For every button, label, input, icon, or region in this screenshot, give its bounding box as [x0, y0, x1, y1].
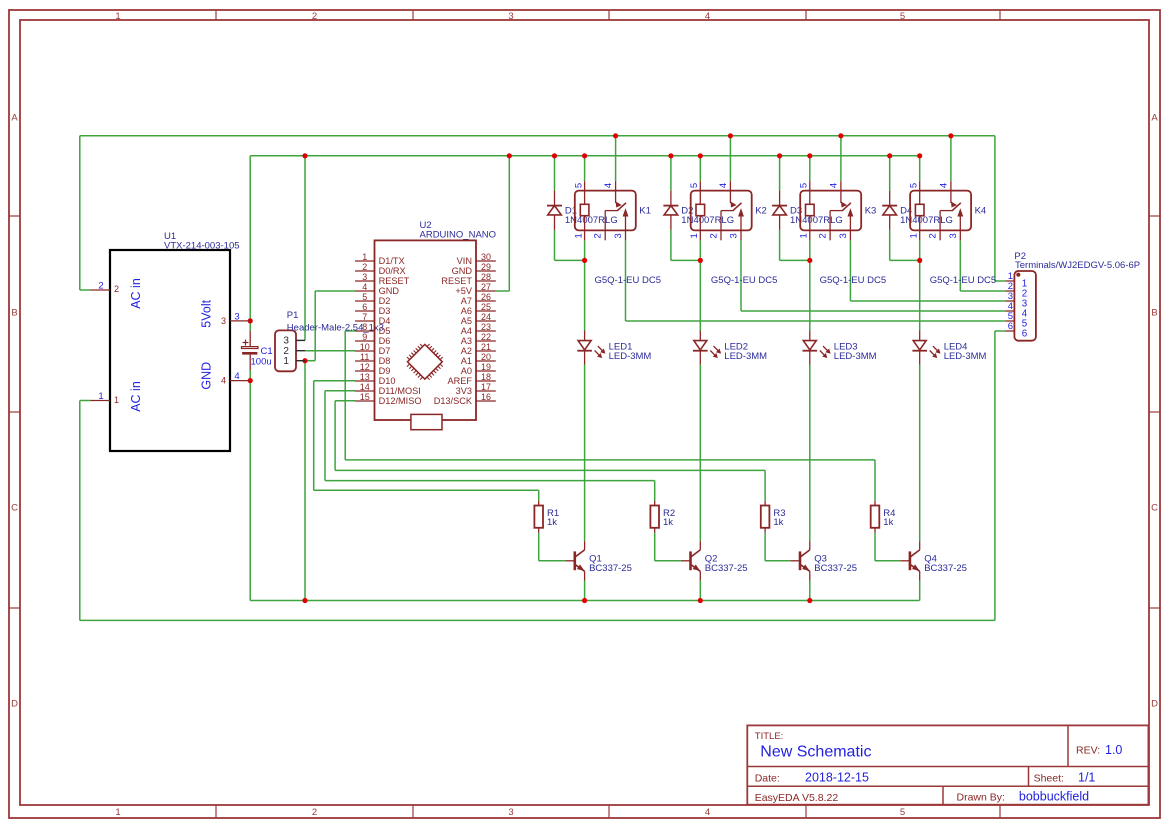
- svg-text:BC337-25: BC337-25: [589, 563, 632, 574]
- svg-text:1: 1: [115, 807, 120, 818]
- svg-text:1: 1: [909, 233, 920, 238]
- svg-text:5: 5: [900, 11, 905, 22]
- svg-text:GND: GND: [200, 362, 214, 390]
- svg-text:5Volt: 5Volt: [200, 299, 214, 327]
- svg-text:BC337-25: BC337-25: [814, 563, 857, 574]
- svg-text:bobbuckfield: bobbuckfield: [1019, 790, 1089, 804]
- svg-text:D8: D8: [379, 356, 391, 366]
- svg-text:A: A: [11, 113, 18, 124]
- svg-text:2: 2: [98, 281, 103, 292]
- svg-text:1: 1: [689, 233, 700, 238]
- svg-text:1: 1: [283, 356, 289, 367]
- svg-text:22: 22: [481, 332, 491, 342]
- svg-text:29: 29: [481, 262, 491, 272]
- svg-text:21: 21: [481, 342, 491, 352]
- svg-text:A: A: [1151, 113, 1158, 124]
- svg-text:3: 3: [221, 316, 226, 326]
- svg-text:1N4007RLG: 1N4007RLG: [900, 215, 953, 226]
- svg-text:3: 3: [613, 233, 624, 238]
- svg-text:30: 30: [481, 252, 491, 262]
- svg-text:D2: D2: [379, 296, 391, 306]
- svg-text:D0/RX: D0/RX: [379, 266, 406, 276]
- svg-text:26: 26: [481, 292, 491, 302]
- svg-text:A4: A4: [461, 326, 472, 336]
- svg-text:K1: K1: [639, 205, 651, 216]
- svg-text:K2: K2: [755, 205, 767, 216]
- svg-text:A2: A2: [461, 346, 472, 356]
- svg-text:Date:: Date:: [755, 772, 780, 784]
- svg-text:1: 1: [573, 233, 584, 238]
- svg-text:D9: D9: [379, 366, 391, 376]
- svg-text:LED-3MM: LED-3MM: [834, 351, 877, 362]
- svg-text:G5Q-1-EU DC5: G5Q-1-EU DC5: [820, 275, 887, 286]
- svg-text:5: 5: [799, 183, 810, 188]
- svg-text:1.0: 1.0: [1105, 743, 1122, 757]
- svg-text:6: 6: [1008, 321, 1013, 332]
- svg-text:1N4007RLG: 1N4007RLG: [681, 215, 734, 226]
- svg-text:GND: GND: [379, 286, 400, 296]
- svg-text:27: 27: [481, 282, 491, 292]
- svg-text:G5Q-1-EU DC5: G5Q-1-EU DC5: [595, 275, 662, 286]
- svg-text:B: B: [11, 308, 17, 319]
- svg-text:4: 4: [705, 807, 710, 818]
- svg-text:1: 1: [115, 11, 120, 22]
- svg-text:4: 4: [718, 183, 729, 188]
- svg-text:3: 3: [508, 807, 513, 818]
- svg-text:3: 3: [948, 233, 959, 238]
- svg-text:1k: 1k: [547, 517, 557, 528]
- svg-text:A1: A1: [461, 356, 472, 366]
- svg-text:7: 7: [362, 312, 367, 322]
- svg-text:2: 2: [312, 807, 317, 818]
- svg-text:REV:: REV:: [1076, 745, 1100, 757]
- svg-text:D: D: [1151, 699, 1158, 710]
- svg-text:RESET: RESET: [441, 276, 472, 286]
- svg-text:4: 4: [362, 282, 367, 292]
- svg-text:5: 5: [362, 292, 367, 302]
- svg-text:5: 5: [909, 183, 920, 188]
- svg-text:17: 17: [481, 382, 491, 392]
- svg-text:RESET: RESET: [379, 276, 410, 286]
- svg-text:+5V: +5V: [455, 286, 472, 296]
- svg-text:K3: K3: [865, 205, 877, 216]
- svg-text:9: 9: [362, 332, 367, 342]
- svg-text:K4: K4: [975, 205, 987, 216]
- svg-text:Sheet:: Sheet:: [1034, 772, 1064, 784]
- svg-text:D3: D3: [379, 306, 391, 316]
- svg-text:D13/SCK: D13/SCK: [434, 396, 473, 406]
- svg-text:GND: GND: [452, 266, 473, 276]
- svg-text:D11/MOSI: D11/MOSI: [379, 386, 421, 396]
- svg-text:2: 2: [114, 284, 119, 294]
- svg-text:1k: 1k: [773, 517, 783, 528]
- svg-text:AC in: AC in: [129, 278, 143, 309]
- svg-text:TITLE:: TITLE:: [755, 731, 784, 742]
- svg-text:2: 2: [928, 233, 939, 238]
- svg-text:A5: A5: [461, 316, 472, 326]
- svg-text:VTX-214-003-105: VTX-214-003-105: [164, 241, 240, 252]
- svg-text:15: 15: [360, 392, 370, 402]
- svg-text:ARDUINO_NANO: ARDUINO_NANO: [420, 230, 497, 241]
- svg-text:D10: D10: [379, 376, 396, 386]
- svg-text:6: 6: [362, 302, 367, 312]
- svg-text:D: D: [11, 699, 18, 710]
- svg-text:D7: D7: [379, 346, 391, 356]
- svg-text:1: 1: [799, 233, 810, 238]
- svg-text:4: 4: [234, 371, 239, 382]
- svg-text:2: 2: [593, 233, 604, 238]
- svg-text:G5Q-1-EU DC5: G5Q-1-EU DC5: [711, 275, 778, 286]
- svg-text:18: 18: [481, 372, 491, 382]
- svg-text:4: 4: [938, 183, 949, 188]
- svg-text:4: 4: [603, 183, 614, 188]
- svg-text:8: 8: [362, 322, 367, 332]
- svg-text:4: 4: [705, 11, 710, 22]
- svg-text:1: 1: [114, 395, 119, 405]
- svg-text:14: 14: [360, 382, 370, 392]
- svg-text:24: 24: [481, 312, 491, 322]
- svg-text:D12/MISO: D12/MISO: [379, 396, 422, 406]
- svg-text:1/1: 1/1: [1078, 771, 1095, 785]
- svg-text:B: B: [1151, 308, 1157, 319]
- svg-text:4: 4: [828, 183, 839, 188]
- svg-text:1: 1: [98, 391, 103, 402]
- svg-text:3: 3: [234, 312, 239, 323]
- svg-text:A7: A7: [461, 296, 472, 306]
- svg-text:D5: D5: [379, 326, 391, 336]
- svg-text:LED-3MM: LED-3MM: [724, 351, 767, 362]
- svg-text:1: 1: [362, 252, 367, 262]
- svg-text:A3: A3: [461, 336, 472, 346]
- svg-text:1N4007RLG: 1N4007RLG: [790, 215, 843, 226]
- svg-text:D1/TX: D1/TX: [379, 256, 405, 266]
- svg-text:1k: 1k: [663, 517, 673, 528]
- svg-text:6: 6: [1022, 328, 1028, 339]
- svg-text:5: 5: [900, 807, 905, 818]
- svg-text:5: 5: [689, 183, 700, 188]
- svg-text:BC337-25: BC337-25: [705, 563, 748, 574]
- svg-text:5: 5: [573, 183, 584, 188]
- svg-text:19: 19: [481, 362, 491, 372]
- svg-text:16: 16: [481, 392, 491, 402]
- svg-text:28: 28: [481, 272, 491, 282]
- svg-text:D6: D6: [379, 336, 391, 346]
- svg-text:12: 12: [360, 362, 370, 372]
- svg-text:LED-3MM: LED-3MM: [944, 351, 987, 362]
- svg-text:2: 2: [312, 11, 317, 22]
- svg-text:1k: 1k: [883, 517, 893, 528]
- svg-text:3: 3: [838, 233, 849, 238]
- svg-text:Drawn By:: Drawn By:: [957, 791, 1005, 803]
- svg-text:New Schematic: New Schematic: [760, 743, 871, 760]
- svg-text:23: 23: [481, 322, 491, 332]
- svg-text:1N4007RLG: 1N4007RLG: [565, 215, 618, 226]
- svg-text:C: C: [11, 503, 18, 514]
- svg-text:G5Q-1-EU DC5: G5Q-1-EU DC5: [930, 275, 997, 286]
- svg-text:3: 3: [362, 272, 367, 282]
- svg-text:10: 10: [360, 342, 370, 352]
- svg-text:LED-3MM: LED-3MM: [609, 351, 652, 362]
- svg-text:AC in: AC in: [129, 381, 143, 412]
- svg-text:25: 25: [481, 302, 491, 312]
- svg-text:AREF: AREF: [447, 376, 472, 386]
- svg-text:D4: D4: [379, 316, 391, 326]
- svg-text:P1: P1: [287, 310, 299, 321]
- svg-text:BC337-25: BC337-25: [924, 563, 967, 574]
- svg-text:2: 2: [362, 262, 367, 272]
- svg-text:Header-Male-2.54_1x3: Header-Male-2.54_1x3: [287, 322, 384, 333]
- svg-text:3: 3: [508, 11, 513, 22]
- svg-text:Terminals/WJ2EDGV-5.06-6P: Terminals/WJ2EDGV-5.06-6P: [1015, 260, 1140, 271]
- svg-text:13: 13: [360, 372, 370, 382]
- svg-text:3V3: 3V3: [456, 386, 472, 396]
- svg-text:C: C: [1151, 503, 1158, 514]
- svg-text:11: 11: [360, 352, 369, 362]
- svg-text:A0: A0: [461, 366, 472, 376]
- svg-text:A6: A6: [461, 306, 472, 316]
- svg-text:20: 20: [481, 352, 491, 362]
- svg-text:2018-12-15: 2018-12-15: [805, 771, 869, 785]
- svg-text:C1: C1: [261, 346, 273, 357]
- svg-text:2: 2: [818, 233, 829, 238]
- svg-text:VIN: VIN: [457, 256, 472, 266]
- svg-text:EasyEDA V5.8.22: EasyEDA V5.8.22: [755, 792, 839, 804]
- svg-text:100u: 100u: [251, 357, 272, 368]
- svg-text:4: 4: [221, 376, 226, 386]
- svg-text:2: 2: [709, 233, 720, 238]
- svg-text:3: 3: [729, 233, 740, 238]
